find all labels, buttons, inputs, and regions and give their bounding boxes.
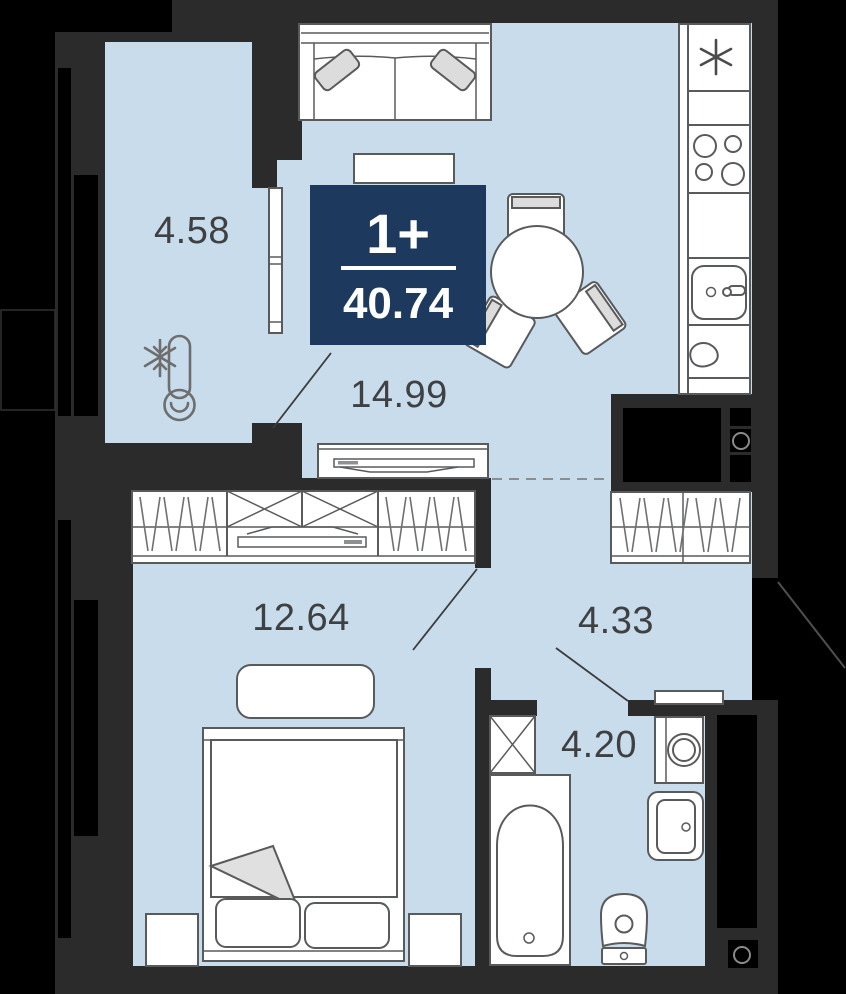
- apartment-area-value: 40.74: [343, 279, 454, 328]
- kettle: [688, 325, 750, 378]
- ventilation-shaft: [623, 408, 751, 482]
- counter-section: [688, 91, 750, 125]
- round-table: [491, 226, 583, 318]
- pillow: [305, 903, 389, 948]
- counter-section: [688, 193, 750, 258]
- room-label-hallway: 4.33: [578, 600, 654, 642]
- washing-machine: [655, 717, 703, 783]
- sofa: [299, 24, 491, 120]
- water-heater-box: [490, 716, 535, 773]
- balcony-divider-wall: [1, 310, 55, 410]
- hallway-shelf: [655, 691, 723, 704]
- kitchen-sink: [688, 258, 750, 325]
- counter-section: [688, 378, 750, 394]
- entrance-opening: [752, 578, 778, 700]
- tv-stand: [354, 154, 454, 183]
- floor-plan: 4.58 14.99 12.64 4.33 4.20 1+ 40.74: [0, 0, 846, 994]
- stove: [688, 125, 750, 193]
- room-label-bedroom: 12.64: [252, 597, 350, 639]
- toilet: [601, 894, 647, 964]
- room-label-bathroom: 4.20: [561, 724, 637, 766]
- exterior-right: [778, 0, 846, 994]
- fridge: [688, 24, 750, 91]
- pillow: [216, 899, 300, 947]
- exterior-left: [0, 0, 55, 994]
- hallway-closet: [611, 492, 750, 563]
- room-living-notch: [277, 160, 302, 190]
- balcony-partition-window: [269, 188, 282, 333]
- room-label-living: 14.99: [350, 374, 448, 416]
- apartment-badge: 1+ 40.74: [310, 185, 486, 345]
- bathroom-sink: [648, 792, 703, 860]
- apartment-type-label: 1+: [366, 202, 430, 265]
- kitchen-counter: [679, 24, 750, 394]
- dresser: [318, 444, 488, 478]
- bedroom-wardrobe: [132, 491, 475, 563]
- room-label-balcony: 4.58: [154, 210, 230, 252]
- badge-divider: [341, 266, 456, 270]
- bed: [203, 728, 404, 961]
- bench: [237, 665, 374, 718]
- nightstand: [146, 914, 198, 966]
- bathtub: [490, 775, 570, 965]
- nightstand: [409, 914, 461, 966]
